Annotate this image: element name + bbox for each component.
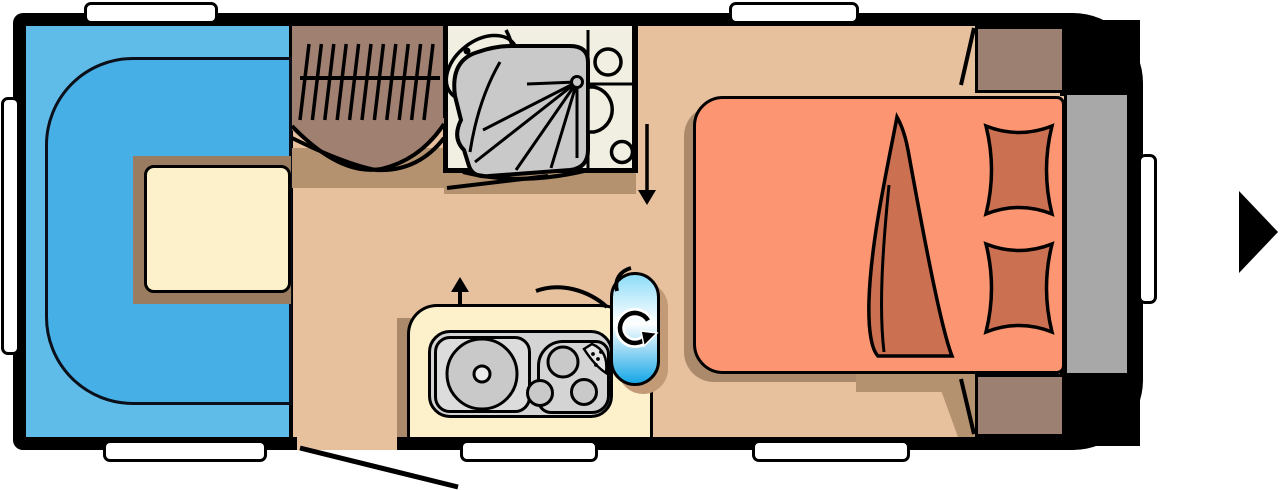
washroom	[448, 26, 633, 170]
washroom-shadow	[444, 172, 636, 194]
kitchen-sink	[434, 336, 531, 413]
wardrobe-shadow	[292, 148, 444, 188]
double-bed	[693, 96, 1065, 374]
entry-door-swing	[300, 448, 458, 487]
bed-step	[856, 392, 958, 437]
headboard-shelf	[1064, 92, 1130, 376]
rear-cabinet-bottom	[975, 374, 1065, 437]
floor-plan-canvas	[0, 0, 1280, 490]
washroom-wall-bottom	[443, 168, 638, 173]
window-top-front	[84, 2, 218, 24]
entry-door-opening	[297, 437, 397, 450]
washroom-wall-right	[632, 26, 638, 173]
wardrobe	[292, 26, 444, 126]
window-bottom-rear	[752, 440, 910, 462]
washroom-wall-left	[443, 26, 448, 173]
window-rear-end	[1138, 154, 1157, 304]
swivel-fixture	[610, 272, 660, 386]
rear-corner-filler-top	[1060, 20, 1140, 96]
window-front-end	[1, 97, 20, 355]
dinette-table	[144, 165, 291, 293]
direction-arrow-icon	[1239, 191, 1278, 273]
rear-corner-filler-bottom	[1060, 370, 1140, 446]
window-top-rear	[729, 2, 859, 24]
window-bottom-front	[103, 440, 267, 462]
rear-cabinet-top	[975, 26, 1065, 93]
window-bottom-middle	[460, 440, 598, 462]
kitchen-hob	[537, 340, 610, 414]
